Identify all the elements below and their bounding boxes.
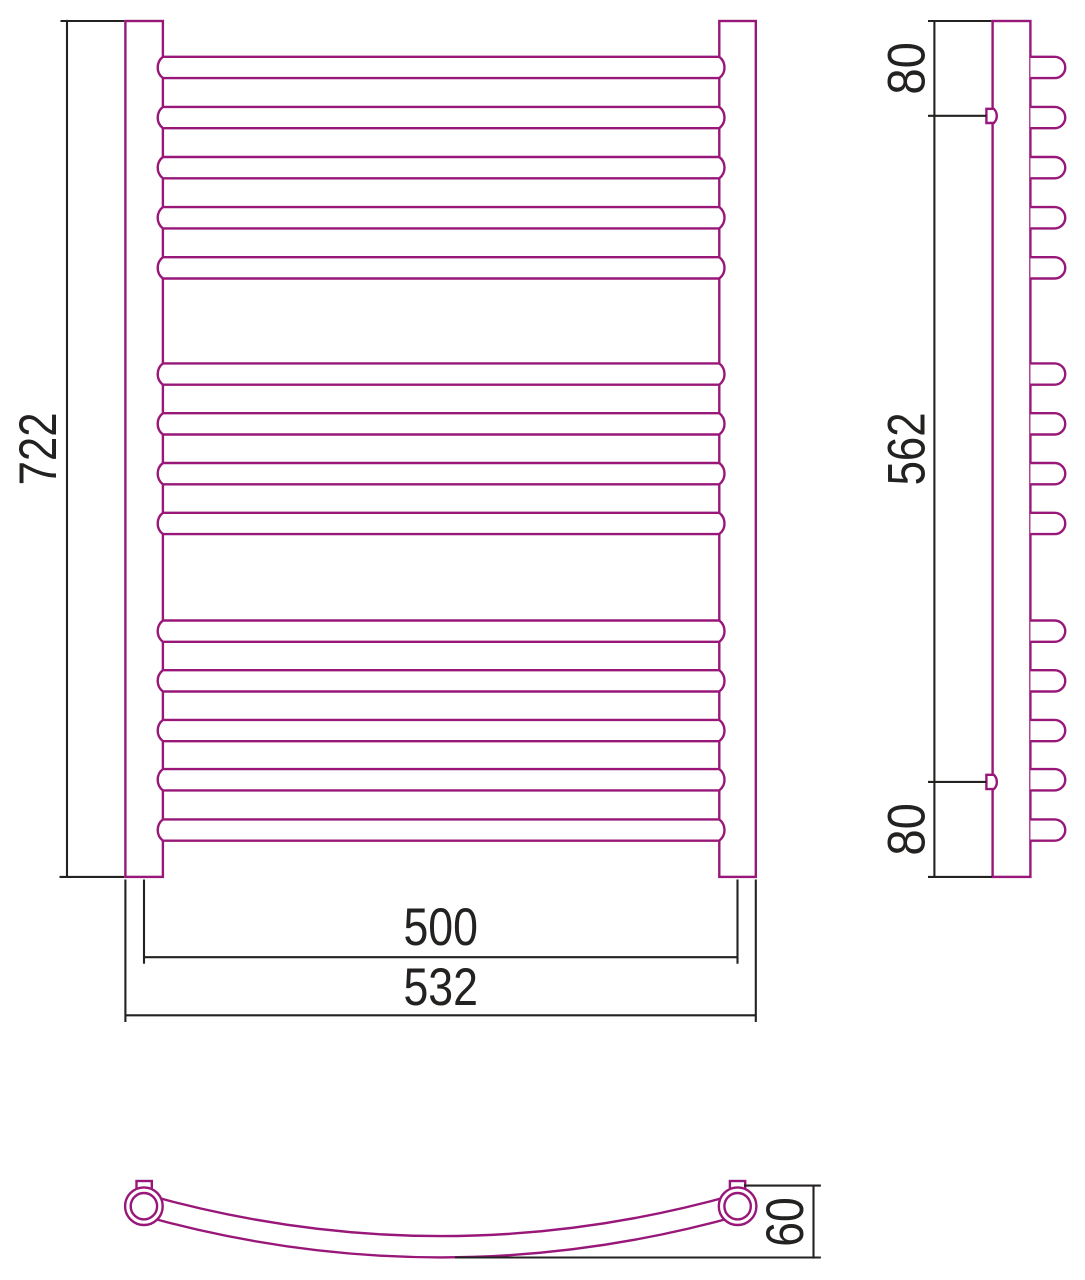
svg-text:532: 532 xyxy=(403,958,478,1017)
svg-text:80: 80 xyxy=(877,42,936,95)
svg-text:562: 562 xyxy=(877,412,936,485)
svg-text:722: 722 xyxy=(9,412,68,485)
svg-text:60: 60 xyxy=(756,1197,815,1247)
svg-text:80: 80 xyxy=(877,803,936,856)
svg-text:500: 500 xyxy=(403,898,478,957)
